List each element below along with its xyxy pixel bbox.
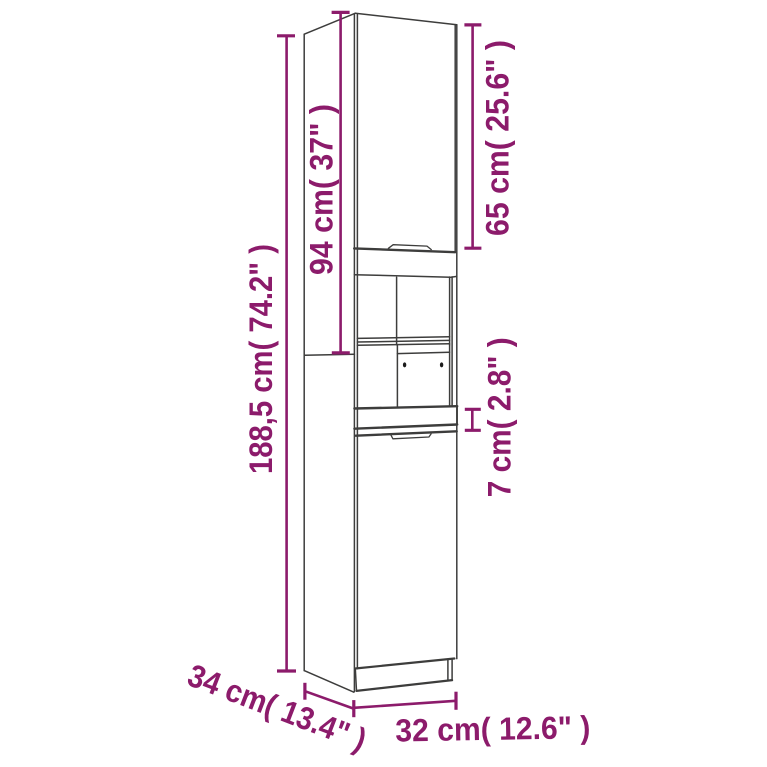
svg-text:7 cm( 2.8" ): 7 cm( 2.8" ) [482,337,518,497]
svg-text:65 cm( 25.6" ): 65 cm( 25.6" ) [480,40,516,236]
svg-text:188,5 cm( 74.2" ): 188,5 cm( 74.2" ) [243,244,279,474]
svg-text:32 cm( 12.6" ): 32 cm( 12.6" ) [395,709,591,748]
svg-text:94 cm( 37" ): 94 cm( 37" ) [304,104,340,275]
